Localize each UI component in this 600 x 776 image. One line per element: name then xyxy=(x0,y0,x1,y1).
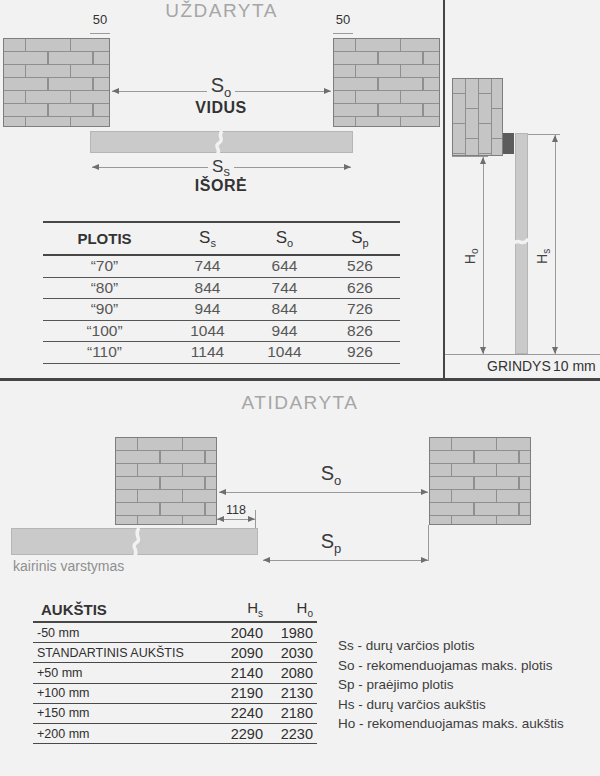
sp-dimension-label: Sp xyxy=(301,530,361,556)
table-cell: “90” xyxy=(43,299,166,321)
table-row: “100”1044944826 xyxy=(43,320,400,342)
floor-label: GRINDYS xyxy=(487,358,551,374)
so-dimension-line xyxy=(219,492,428,493)
hs-dimension-line xyxy=(555,135,556,354)
table-cell: 926 xyxy=(320,342,400,364)
table-cell: 744 xyxy=(249,277,320,299)
table-row: “110”11441044926 xyxy=(43,342,400,364)
table-cell: 1044 xyxy=(249,342,320,364)
table-cell: “70” xyxy=(43,255,166,277)
table-cell: +100 mm xyxy=(33,683,215,703)
legend-item: Ho - rekomenduojamas maks. aukštis xyxy=(338,714,588,734)
column-header: Ss xyxy=(166,222,249,255)
table-row: +50 mm21402080 xyxy=(33,663,317,683)
table-cell: 2190 xyxy=(215,683,267,703)
spec-sheet: UŽDARYTA 50 50 So VIDUS Ss IŠORĖ PLOTISS… xyxy=(0,0,600,776)
table-cell: “110” xyxy=(43,342,166,364)
brick-wall-right xyxy=(429,437,531,525)
column-header: Sp xyxy=(320,222,400,255)
table-cell: 2040 xyxy=(215,622,267,643)
table-cell: 2030 xyxy=(267,643,317,663)
sp-dimension-line xyxy=(263,560,428,561)
table-cell: 826 xyxy=(320,320,400,342)
floor-gap-label: 10 mm xyxy=(553,358,596,374)
table-row: “90”944844726 xyxy=(43,299,400,321)
table-cell: 944 xyxy=(166,299,249,321)
door-leaf-open xyxy=(11,528,258,555)
table-row: +100 mm21902130 xyxy=(33,683,317,703)
extension-tick xyxy=(428,525,429,561)
column-header: So xyxy=(249,222,320,255)
table-cell: 626 xyxy=(320,277,400,299)
column-header: Ho xyxy=(267,597,317,622)
table-cell: 2090 xyxy=(215,643,267,663)
table-row: +150 mm22402180 xyxy=(33,703,317,723)
table-header-row: PLOTISSsSoSp xyxy=(43,222,400,255)
table-cell: 844 xyxy=(166,277,249,299)
table-row: “80”844744626 xyxy=(43,277,400,299)
width-table: PLOTISSsSoSp“70”744644526“80”844744626“9… xyxy=(43,221,400,364)
ho-dimension-label: Ho xyxy=(462,236,481,276)
door-leaf-side xyxy=(515,133,528,354)
table-cell: “100” xyxy=(43,320,166,342)
overhang-dim-right: 50 xyxy=(318,12,368,27)
open-overhang-dim: 118 xyxy=(217,503,255,517)
table-cell: +200 mm xyxy=(33,723,215,743)
overhang-dim-left: 50 xyxy=(75,12,125,27)
open-section-title: ATIDARYTA xyxy=(0,392,600,414)
brick-wall-right xyxy=(333,38,440,127)
table-row: STANDARTINIS AUKŠTIS20902030 xyxy=(33,643,317,663)
legend-item: Hs - durų varčios aukštis xyxy=(338,695,588,715)
open-overhang-dimline xyxy=(217,519,255,520)
brick-wall-left xyxy=(115,437,217,525)
column-header: Hs xyxy=(215,597,267,622)
table-cell: 726 xyxy=(320,299,400,321)
table-row: -50 mm20401980 xyxy=(33,622,317,643)
brick-wall-left xyxy=(3,38,110,127)
table-cell: -50 mm xyxy=(33,622,215,643)
legend-item: So - rekomenduojamas maks. plotis xyxy=(338,656,588,676)
table-cell: +50 mm xyxy=(33,663,215,683)
table-row: +200 mm22902230 xyxy=(33,723,317,743)
table-cell: STANDARTINIS AUKŠTIS xyxy=(33,643,215,663)
table-cell: 744 xyxy=(166,255,249,277)
height-table: AUKŠTISHsHo-50 mm20401980STANDARTINIS AU… xyxy=(33,597,317,744)
legend-item: Sp - praėjimo plotis xyxy=(338,675,588,695)
break-symbol xyxy=(211,131,229,155)
swing-direction-label: kairinis varstymas xyxy=(13,558,124,574)
lintel-block xyxy=(503,133,514,154)
table-cell: 944 xyxy=(249,320,320,342)
table-cell: 2230 xyxy=(267,723,317,743)
door-leaf-plan xyxy=(90,131,353,153)
table-cell: 526 xyxy=(320,255,400,277)
table-cell: +150 mm xyxy=(33,703,215,723)
column-header: AUKŠTIS xyxy=(33,597,215,622)
table-cell: 2180 xyxy=(267,703,317,723)
table-cell: 844 xyxy=(249,299,320,321)
table-cell: 2130 xyxy=(267,683,317,703)
table-cell: 2140 xyxy=(215,663,267,683)
vertical-divider xyxy=(443,0,445,380)
outside-label: IŠORĖ xyxy=(160,177,282,195)
extension-tick xyxy=(255,510,256,528)
table-row: “70”744644526 xyxy=(43,255,400,277)
closed-section-title: UŽDARYTA xyxy=(0,0,443,22)
so-dimension-label: So xyxy=(301,462,361,488)
break-symbol xyxy=(128,528,146,557)
ho-dimension-line xyxy=(483,157,484,354)
overhang-dimline-right xyxy=(333,33,353,34)
table-cell: 1144 xyxy=(166,342,249,364)
column-header: PLOTIS xyxy=(43,222,166,255)
table-cell: “80” xyxy=(43,277,166,299)
table-cell: 2290 xyxy=(215,723,267,743)
table-cell: 1980 xyxy=(267,622,317,643)
table-cell: 2080 xyxy=(267,663,317,683)
section-divider xyxy=(0,378,600,381)
legend: Ss - durų varčios plotisSo - rekomenduoj… xyxy=(338,636,588,734)
so-dimension-label: So xyxy=(191,74,251,100)
table-cell: 2240 xyxy=(215,703,267,723)
break-symbol xyxy=(514,234,531,248)
brick-wall-section xyxy=(452,78,503,156)
table-cell: 644 xyxy=(249,255,320,277)
table-header-row: AUKŠTISHsHo xyxy=(33,597,317,622)
inside-label: VIDUS xyxy=(160,99,282,117)
legend-item: Ss - durų varčios plotis xyxy=(338,636,588,656)
hs-dimension-label: Hs xyxy=(534,236,553,276)
floor-line xyxy=(445,354,600,355)
table-cell: 1044 xyxy=(166,320,249,342)
overhang-dimline-left xyxy=(90,33,110,34)
